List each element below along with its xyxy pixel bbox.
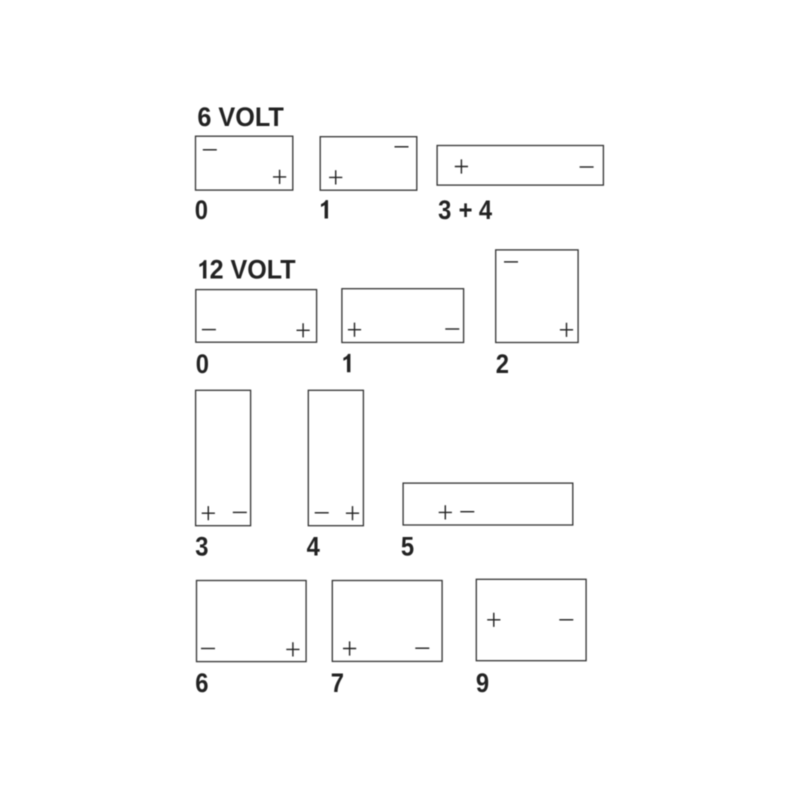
svg-text:9: 9 [476,669,489,699]
svg-text:5: 5 [401,532,414,562]
svg-text:4: 4 [479,196,492,226]
svg-text:2: 2 [496,349,509,379]
svg-text:0: 0 [196,349,209,379]
svg-text:4: 4 [307,532,320,562]
svg-text:6 VOLT: 6 VOLT [197,101,283,132]
svg-text:6: 6 [195,669,208,699]
svg-text:3: 3 [438,196,451,226]
svg-text:+: + [459,196,473,226]
svg-text:2 VOLT: 2 VOLT [210,254,296,285]
svg-text:7: 7 [331,669,344,699]
svg-text:0: 0 [195,196,208,226]
svg-text:3: 3 [195,532,208,562]
